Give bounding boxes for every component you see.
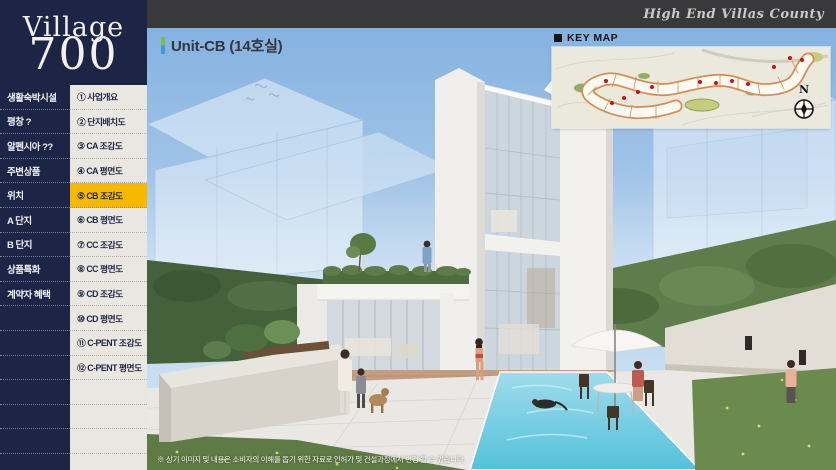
menu-item-complex-a[interactable]: A 단지 — [0, 208, 70, 233]
menu-item-location[interactable]: 위치 — [0, 183, 70, 208]
title-accent-bar-icon — [161, 37, 165, 54]
submenu-item-cb-birdview-active[interactable]: ⑤ CB 조감도 — [70, 183, 147, 208]
menu-row-empty — [70, 405, 147, 430]
key-map-label: KEY MAP — [567, 32, 618, 44]
menu-row-empty — [70, 380, 147, 405]
submenu-item-cc-birdview[interactable]: ⑦ CC 조감도 — [70, 233, 147, 258]
brand-logo-line2: 700 — [29, 37, 119, 73]
keymap-bullet-icon — [554, 34, 562, 42]
wall-lamp-icon — [745, 336, 752, 350]
menu-row-empty — [0, 356, 70, 381]
menu-item-nearby-products[interactable]: 주변상품 — [0, 159, 70, 184]
menu-row-empty — [0, 380, 70, 405]
svg-text:N: N — [799, 83, 809, 96]
submenu-item-ca-floorplan[interactable]: ④ CA 평면도 — [70, 159, 147, 184]
page-title: Unit-CB (14호실) — [161, 35, 282, 56]
menu-item-complex-b[interactable]: B 단지 — [0, 233, 70, 258]
main-menu: 생활숙박시설 평창 ? 알펜시아 ?? 주변상품 위치 A 단지 B 단지 상품… — [0, 85, 70, 470]
menu-row-empty — [70, 429, 147, 454]
submenu-item-site-plan[interactable]: ② 단지배치도 — [70, 110, 147, 135]
submenu-item-cd-floorplan[interactable]: ⑩ CD 평면도 — [70, 306, 147, 331]
menu-item-pyeongchang[interactable]: 평창 ? — [0, 110, 70, 135]
wall-lamp-icon — [799, 350, 806, 365]
menu-row-empty — [0, 405, 70, 430]
menu-item-living-facility[interactable]: 생활숙박시설 — [0, 85, 70, 110]
key-map-image: N — [552, 47, 830, 128]
main-stage: Unit-CB (14호실) KEY MAP — [147, 28, 836, 470]
submenu-item-ca-birdview[interactable]: ③ CA 조감도 — [70, 134, 147, 159]
menu-item-alpensia[interactable]: 알펜시아 ?? — [0, 134, 70, 159]
key-map: KEY MAP — [552, 32, 832, 128]
menu-row-empty — [0, 454, 70, 470]
key-map-header: KEY MAP — [554, 32, 832, 44]
page-title-text: Unit-CB (14호실) — [171, 35, 282, 56]
submenu-item-cpent-floorplan[interactable]: ⑫ C-PENT 평면도 — [70, 356, 147, 381]
grass-right — [692, 368, 836, 470]
menu-row-empty — [0, 331, 70, 356]
disclaimer-text: ※ 상기 이미지 및 내용은 소비자의 이해를 돕기 위한 자료로 인허가 및 … — [157, 454, 465, 465]
map-pond — [685, 99, 719, 111]
submenu-item-cc-floorplan[interactable]: ⑧ CC 평면도 — [70, 257, 147, 282]
submenu-item-cb-floorplan[interactable]: ⑥ CB 평면도 — [70, 208, 147, 233]
menu-row-empty — [70, 454, 147, 470]
menu-item-contractor-benefits[interactable]: 계약자 혜택 — [0, 282, 70, 307]
menu-item-product-features[interactable]: 상품특화 — [0, 257, 70, 282]
menu-row-empty — [0, 429, 70, 454]
sidebar: Village 700 생활숙박시설 평창 ? 알펜시아 ?? 주변상품 위치 … — [0, 0, 147, 470]
sub-menu: ① 사업개요 ② 단지배치도 ③ CA 조감도 ④ CA 평면도 ⑤ CB 조감… — [70, 85, 147, 470]
brand-logo: Village 700 — [0, 0, 147, 85]
top-bar-slogan: High End Villas County — [643, 7, 824, 22]
submenu-item-cd-birdview[interactable]: ⑨ CD 조감도 — [70, 282, 147, 307]
menu-row-empty — [0, 306, 70, 331]
presentation-window: Village 700 생활숙박시설 평창 ? 알펜시아 ?? 주변상품 위치 … — [0, 0, 836, 470]
top-bar: High End Villas County — [147, 0, 836, 28]
sidebar-menus: 생활숙박시설 평창 ? 알펜시아 ?? 주변상품 위치 A 단지 B 단지 상품… — [0, 85, 147, 470]
submenu-item-cpent-birdview[interactable]: ⑪ C-PENT 조감도 — [70, 331, 147, 356]
submenu-item-overview[interactable]: ① 사업개요 — [70, 85, 147, 110]
